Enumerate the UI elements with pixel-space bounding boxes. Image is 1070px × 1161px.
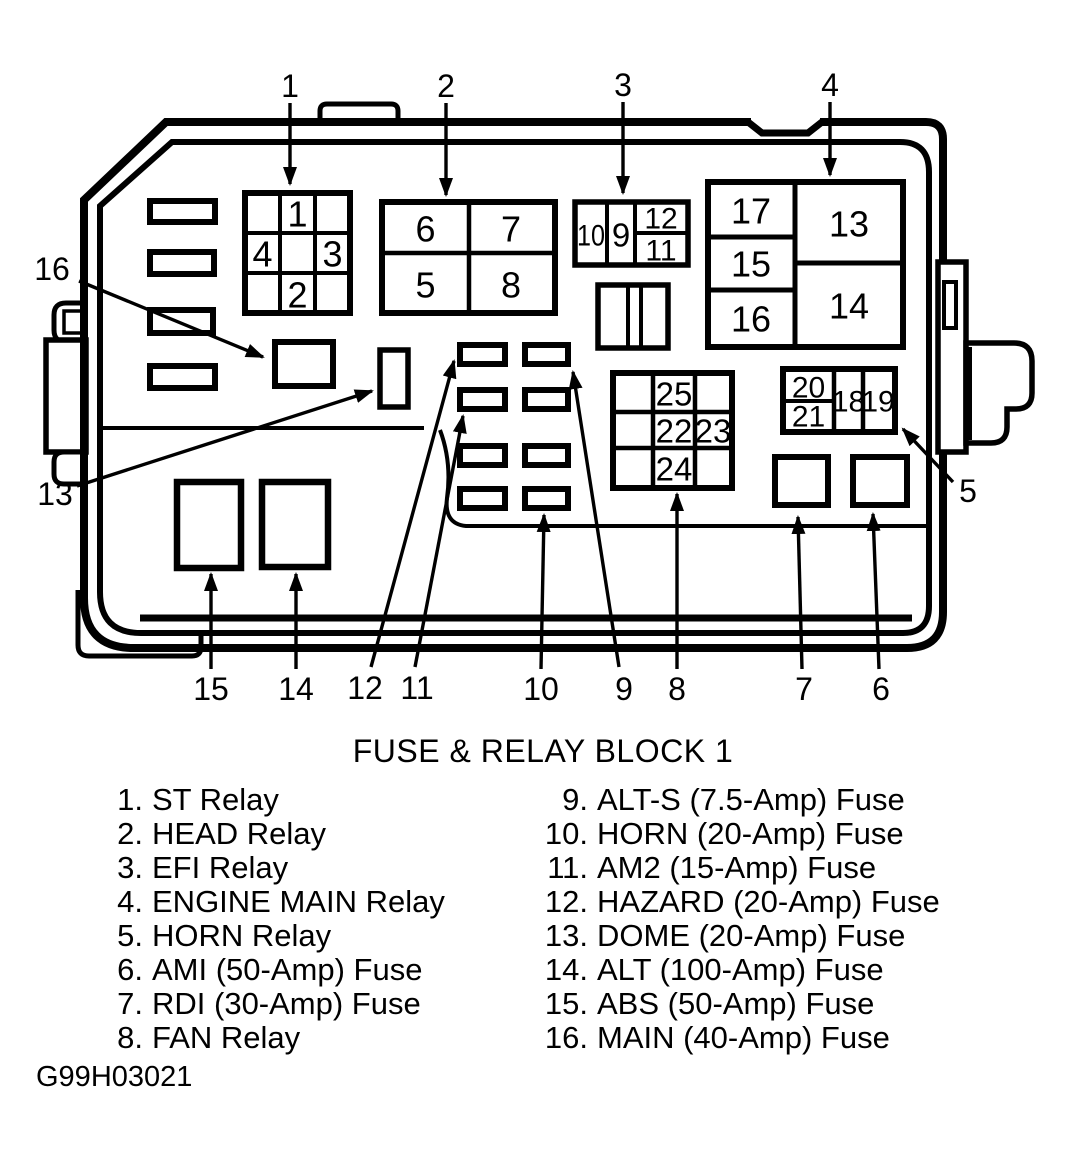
- figure-code: G99H03021: [36, 1061, 192, 1094]
- legend-number: 2.: [98, 817, 143, 851]
- cell-label: 16: [731, 299, 771, 340]
- fuse-slot: [525, 489, 568, 508]
- cell-label: 5: [415, 265, 435, 306]
- legend-number: 12.: [518, 885, 588, 919]
- arrow-11: [415, 416, 463, 667]
- legend-number: 13.: [518, 919, 588, 953]
- legend-item: 10.HORN (20-Amp) Fuse: [518, 817, 940, 851]
- quad-relay-block: 6 7 5 8: [382, 202, 555, 313]
- legend-label: ALT-S (7.5-Amp) Fuse: [597, 783, 905, 817]
- legend-label: DOME (20-Amp) Fuse: [597, 919, 905, 953]
- cell-label: 23: [695, 413, 732, 450]
- callout-label: 6: [872, 671, 890, 707]
- legend-item: 16.MAIN (40-Amp) Fuse: [518, 1021, 940, 1055]
- callout-label: 11: [400, 670, 433, 706]
- legend-label: HAZARD (20-Amp) Fuse: [597, 885, 940, 919]
- legend-item: 9.ALT-S (7.5-Amp) Fuse: [518, 783, 940, 817]
- legend-label: MAIN (40-Amp) Fuse: [597, 1021, 890, 1055]
- dome-fuse-slot: [380, 350, 408, 407]
- legend-number: 1.: [98, 783, 143, 817]
- cell-label: 8: [501, 265, 521, 306]
- cell-label: 19: [861, 386, 894, 419]
- cell-label: 9: [612, 217, 630, 254]
- fuse-slot: [150, 201, 215, 222]
- cell-label: 13: [829, 204, 869, 245]
- legend-label: HEAD Relay: [152, 817, 326, 851]
- cell-label: 4: [252, 234, 272, 275]
- alt-fuse-square: [262, 482, 328, 567]
- legend-number: 7.: [98, 987, 143, 1021]
- legend-label: RDI (30-Amp) Fuse: [152, 987, 421, 1021]
- legend-label: ABS (50-Amp) Fuse: [597, 987, 874, 1021]
- cell-label: 1: [287, 194, 307, 235]
- fuse-slot: [460, 489, 505, 508]
- legend-right-column: 9.ALT-S (7.5-Amp) Fuse 10.HORN (20-Amp) …: [518, 783, 940, 1055]
- cell-label: 7: [501, 209, 521, 250]
- arrow-13: [77, 391, 372, 486]
- legend-label: AMI (50-Amp) Fuse: [152, 953, 422, 987]
- cell-label: 11: [645, 235, 676, 268]
- callout-label: 9: [615, 671, 633, 707]
- callout-label: 13: [37, 476, 73, 512]
- fuse-slot: [525, 390, 568, 409]
- callout-label: 5: [959, 473, 977, 509]
- main-fuse-square: [275, 342, 333, 386]
- fuse-slot: [460, 446, 505, 465]
- legend-number: 4.: [98, 885, 143, 919]
- legend-item: 4.ENGINE MAIN Relay: [98, 885, 445, 919]
- callout-label: 14: [278, 671, 314, 707]
- right-connector: [938, 262, 1032, 452]
- cell-label: 2: [287, 275, 307, 316]
- top-notch-mask: [751, 114, 820, 129]
- main-fuse-block: 17 15 16 13 14: [708, 182, 903, 347]
- legend-number: 14.: [518, 953, 588, 987]
- callout-label: 3: [614, 67, 632, 103]
- fuse-slot: [525, 345, 568, 364]
- legend-item: 14.ALT (100-Amp) Fuse: [518, 953, 940, 987]
- cell-label: 18: [832, 386, 865, 419]
- cell-label: 25: [656, 376, 693, 413]
- right-fuse-strip: 20 21 18 19: [783, 369, 895, 434]
- legend-item: 11.AM2 (15-Amp) Fuse: [518, 851, 940, 885]
- legend-label: ALT (100-Amp) Fuse: [597, 953, 884, 987]
- legend-item: 3.EFI Relay: [98, 851, 445, 885]
- cell-label: 12: [644, 203, 677, 236]
- legend-item: 12.HAZARD (20-Amp) Fuse: [518, 885, 940, 919]
- callout-label: 2: [437, 68, 455, 104]
- callout-label: 7: [795, 671, 813, 707]
- diagram-title: FUSE & RELAY BLOCK 1: [353, 733, 734, 770]
- legend-label: ENGINE MAIN Relay: [152, 885, 445, 919]
- rdi-fuse-square: [775, 457, 828, 505]
- cell-label: 17: [731, 191, 771, 232]
- legend-label: ST Relay: [152, 783, 279, 817]
- legend-number: 11.: [518, 851, 588, 885]
- legend-item: 6.AMI (50-Amp) Fuse: [98, 953, 445, 987]
- cell-label: 24: [656, 451, 693, 488]
- cell-label: 3: [322, 234, 342, 275]
- legend-item: 13.DOME (20-Amp) Fuse: [518, 919, 940, 953]
- callout-label: 1: [281, 68, 299, 104]
- legend-label: AM2 (15-Amp) Fuse: [597, 851, 876, 885]
- callout-label: 8: [668, 671, 686, 707]
- legend-label: EFI Relay: [152, 851, 288, 885]
- cell-label: 6: [415, 209, 435, 250]
- callout-label: 15: [193, 671, 229, 707]
- legend-number: 3.: [98, 851, 143, 885]
- legend-number: 5.: [98, 919, 143, 953]
- cell-label: 15: [731, 244, 771, 285]
- fuse-slot: [525, 446, 568, 465]
- fuse-slot: [150, 252, 214, 274]
- fuse-relay-diagram-page: 1 4 3 2 6 7 5 8 10 9 12 11 17 15: [0, 0, 1070, 1161]
- arrow-16: [79, 281, 263, 357]
- legend-label: HORN Relay: [152, 919, 331, 953]
- fuse-box-diagram: 1 4 3 2 6 7 5 8 10 9 12 11 17 15: [0, 0, 1070, 712]
- legend-number: 15.: [518, 987, 588, 1021]
- legend-label: HORN (20-Amp) Fuse: [597, 817, 904, 851]
- abs-fuse-square: [177, 482, 241, 568]
- ami-fuse-square: [853, 457, 907, 505]
- fuse-strip-block: 10 9 12 11: [575, 202, 688, 268]
- cell-label: 21: [792, 401, 825, 434]
- legend-number: 10.: [518, 817, 588, 851]
- fuse-slot: [460, 345, 505, 364]
- relay-grid-block: 1 4 3 2: [245, 193, 350, 316]
- cell-label: 22: [656, 413, 693, 450]
- blank-strip-block: [598, 285, 668, 348]
- legend-item: 5.HORN Relay: [98, 919, 445, 953]
- left-fuse-stack: [150, 201, 215, 388]
- legend-number: 9.: [518, 783, 588, 817]
- legend-item: 7.RDI (30-Amp) Fuse: [98, 987, 445, 1021]
- cell-label: 14: [829, 286, 869, 327]
- legend-item: 1.ST Relay: [98, 783, 445, 817]
- cell-label: 10: [577, 220, 605, 253]
- callout-label: 12: [347, 670, 383, 706]
- legend-item: 15.ABS (50-Amp) Fuse: [518, 987, 940, 1021]
- callout-label: 16: [34, 251, 70, 287]
- legend-number: 8.: [98, 1021, 143, 1055]
- legend-number: 6.: [98, 953, 143, 987]
- center-fuse-block: 25 22 23 24: [613, 373, 732, 488]
- callout-label: 10: [523, 671, 559, 707]
- legend-item: 8.FAN Relay: [98, 1021, 445, 1055]
- legend-item: 2.HEAD Relay: [98, 817, 445, 851]
- fuse-slot: [460, 390, 505, 409]
- callout-label: 4: [821, 67, 839, 103]
- legend-number: 16.: [518, 1021, 588, 1055]
- center-fuse-columns: [460, 345, 568, 508]
- legend-label: FAN Relay: [152, 1021, 300, 1055]
- fuse-slot: [150, 366, 215, 388]
- legend-left-column: 1.ST Relay 2.HEAD Relay 3.EFI Relay 4.EN…: [98, 783, 445, 1055]
